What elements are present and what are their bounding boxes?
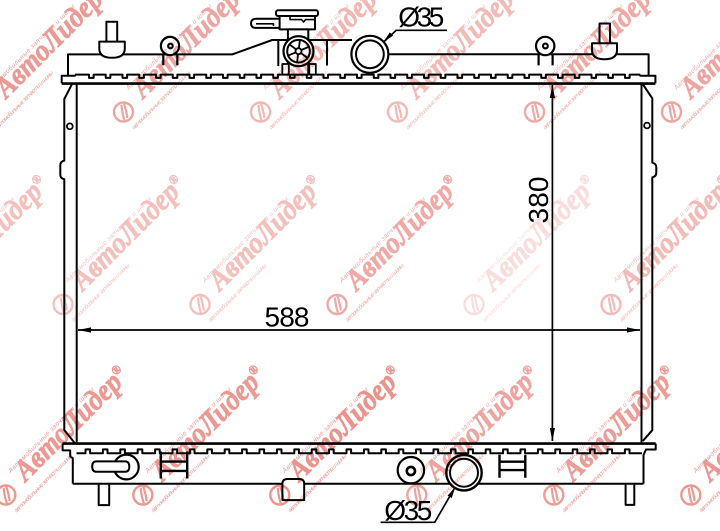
svg-text:Ø35: Ø35 (398, 2, 444, 33)
svg-text:588: 588 (265, 302, 310, 333)
